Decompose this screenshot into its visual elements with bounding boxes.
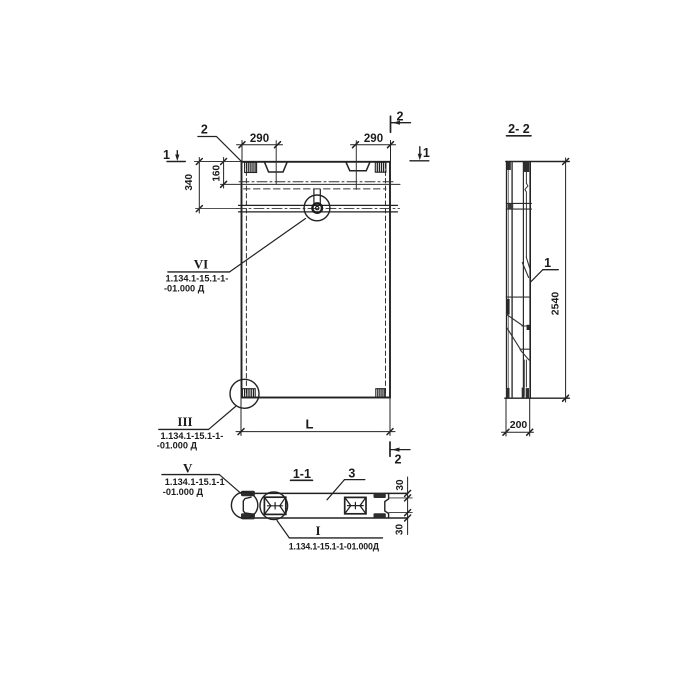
svg-text:III: III [177, 414, 192, 429]
svg-text:2540: 2540 [550, 292, 562, 316]
svg-text:200: 200 [510, 419, 528, 431]
svg-text:1.134.1-15.1-1: 1.134.1-15.1-1 [165, 477, 225, 487]
svg-text:1.134.1-15.1-1-: 1.134.1-15.1-1- [166, 274, 229, 284]
svg-text:-01.000 Д: -01.000 Д [157, 441, 198, 451]
svg-text:340: 340 [184, 174, 195, 191]
svg-text:2- 2: 2- 2 [508, 122, 530, 136]
svg-text:3: 3 [348, 466, 355, 480]
svg-text:2: 2 [397, 109, 404, 123]
svg-text:1: 1 [163, 148, 170, 162]
svg-text:30: 30 [395, 524, 406, 536]
svg-text:L: L [306, 417, 314, 432]
svg-text:2: 2 [395, 453, 402, 467]
svg-text:1: 1 [423, 146, 430, 160]
svg-text:I: I [315, 523, 320, 538]
svg-text:30: 30 [395, 479, 406, 491]
svg-text:290: 290 [364, 133, 383, 145]
svg-text:V: V [183, 460, 193, 475]
svg-text:1.134.1-15.1-1-: 1.134.1-15.1-1- [161, 431, 224, 441]
svg-text:160: 160 [212, 165, 223, 182]
svg-text:VI: VI [194, 257, 208, 272]
svg-text:2: 2 [201, 123, 208, 137]
svg-text:-01.000 Д: -01.000 Д [164, 284, 205, 294]
svg-text:1-1: 1-1 [293, 467, 311, 481]
svg-text:1.134.1-15.1-1-01.000Д: 1.134.1-15.1-1-01.000Д [289, 542, 380, 552]
svg-text:-01.000 Д: -01.000 Д [163, 487, 204, 497]
svg-text:1: 1 [544, 256, 551, 270]
svg-text:290: 290 [250, 133, 269, 145]
